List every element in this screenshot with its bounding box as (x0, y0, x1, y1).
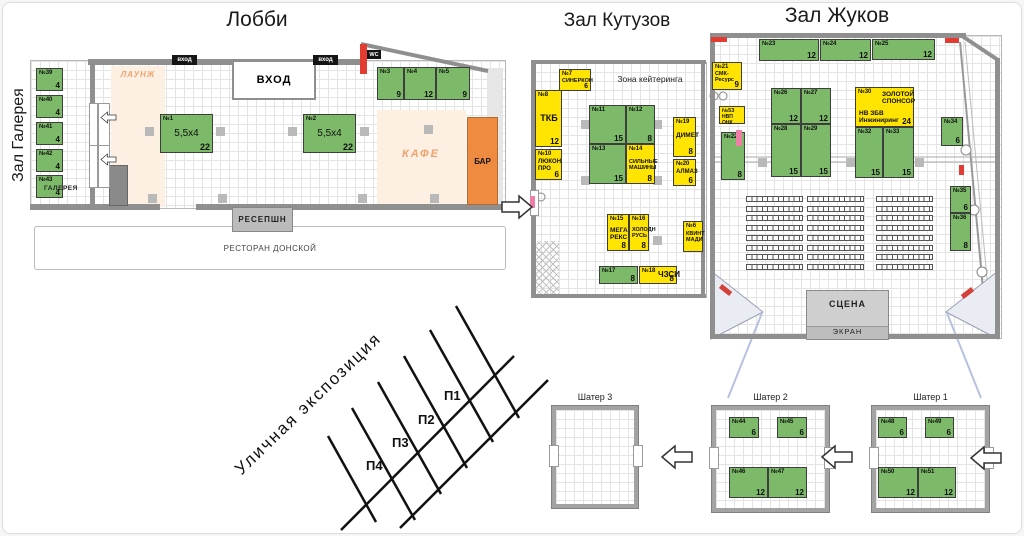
stand-number: №32 (858, 129, 871, 135)
stand-number: №7 (562, 71, 572, 77)
column (430, 194, 439, 203)
stand-32[interactable]: №3215 (855, 127, 883, 178)
tent-3-title: Шатер 3 (552, 392, 638, 402)
stand-number: №13 (592, 146, 605, 152)
seat-row (807, 206, 864, 212)
stand-number: №36 (953, 215, 966, 221)
seat-row (876, 245, 933, 251)
stand-47[interactable]: №4712 (768, 467, 807, 498)
bar-area[interactable]: БАР (467, 117, 498, 205)
stand-14[interactable]: №14СИЛЬНЫЕ МАШИНЫ8 (626, 144, 655, 184)
stand-number: №2 (306, 116, 316, 122)
seat-row (746, 235, 803, 241)
stand-41[interactable]: №414 (36, 122, 63, 145)
seat-row (746, 196, 803, 202)
door-marker (736, 130, 742, 146)
stand-area: 8 (670, 274, 674, 283)
stand-area: 6 (800, 428, 804, 437)
stand-number: №19 (676, 119, 689, 125)
column (758, 158, 767, 167)
seating-block (746, 196, 803, 278)
kutuzov-title: Зал Кутузов (547, 10, 687, 32)
zhukov-right-wall (995, 58, 1000, 338)
stand-23[interactable]: №2312 (759, 39, 819, 61)
column (915, 158, 924, 167)
stand-number: №16 (632, 216, 645, 222)
tent-3 (552, 406, 638, 508)
cafe-label: КАФЕ (388, 148, 454, 160)
gallery-label: ГАЛЕРЕЯ (44, 185, 102, 192)
stand-number: №35 (953, 188, 966, 194)
door-marker (959, 165, 964, 175)
stand-number: №48 (881, 419, 894, 425)
stand-53[interactable]: №53НВП ОНК (719, 106, 745, 124)
stand-20[interactable]: №20АЛМАЗ6 (673, 159, 696, 186)
stand-area: 12 (795, 488, 804, 497)
stand-number: №28 (774, 126, 787, 132)
main-entrance[interactable]: ВХОД (232, 60, 316, 100)
stand-49[interactable]: №496 (925, 417, 954, 438)
stand-number: №1 (163, 116, 173, 122)
stand-42[interactable]: №424 (36, 149, 63, 172)
stand-area: 4 (56, 108, 60, 117)
stand-1[interactable]: №15,5x422 (160, 114, 213, 153)
seat-row (876, 264, 933, 270)
entrance-small[interactable]: вход (313, 55, 338, 65)
tent-door (869, 447, 879, 469)
stand-number: №30 (858, 89, 871, 95)
stand-17[interactable]: №178 (599, 266, 638, 284)
stand-area: 12 (756, 488, 765, 497)
stand-area: 6 (584, 83, 588, 90)
seat-row (876, 215, 933, 221)
stand-area: 8 (689, 147, 693, 156)
gallery-door-gap (89, 103, 98, 146)
tent-door (984, 447, 994, 469)
stand-area: 4 (56, 81, 60, 90)
stand-7[interactable]: №7СИНЕРКОН6 (559, 69, 591, 91)
stand-39[interactable]: №394 (36, 68, 63, 91)
kutuzov-right-wall (701, 60, 705, 298)
stand-area: 22 (343, 142, 353, 152)
stand-number: №25 (875, 41, 888, 47)
seat-row (746, 215, 803, 221)
stand-area: 4 (56, 135, 60, 144)
lounge-label: ЛАУНЖ (111, 70, 165, 79)
column (218, 194, 227, 203)
stand-number: №5 (439, 69, 449, 75)
stand-8[interactable]: №8ТКБ12 (535, 90, 562, 147)
stand-number: №20 (676, 161, 689, 167)
stand-2[interactable]: №25,5x422 (303, 114, 356, 153)
stand-48[interactable]: №486 (878, 417, 907, 438)
stand-number: №46 (732, 469, 745, 475)
stand-18[interactable]: №18ЧЗСИ8 (639, 266, 677, 284)
stand-area: 15 (614, 174, 623, 183)
stand-5[interactable]: №59 (436, 67, 470, 100)
column (216, 127, 225, 136)
stand-21[interactable]: №21СМК-Ресурс9 (712, 62, 742, 90)
gallery-door[interactable] (98, 103, 110, 146)
stand-number: №15 (610, 216, 623, 222)
seat-row (807, 215, 864, 221)
stand-number: №43 (39, 177, 52, 183)
stand-26[interactable]: №2612 (771, 88, 801, 124)
gallery-door[interactable] (98, 145, 110, 188)
stand-area: 12 (944, 488, 953, 497)
stand-25[interactable]: №2512 (872, 39, 935, 60)
seat-row (746, 254, 803, 260)
stand-area: 9 (735, 80, 739, 89)
seat-row (746, 206, 803, 212)
reception-desk[interactable]: РЕСЕПШН (232, 207, 293, 232)
seat-row (746, 245, 803, 251)
stand-area: 9 (397, 90, 401, 99)
stand-area: 24 (902, 117, 911, 126)
stand-area: 15 (819, 167, 828, 176)
stand-number: №44 (732, 419, 745, 425)
stand-10[interactable]: №10ЛЮКОН ПРО6 (535, 149, 562, 180)
stand-size: 5,5x4 (161, 128, 212, 139)
stand-16[interactable]: №16ХОЛОДН РУСЬ8 (629, 214, 649, 251)
stand-number: №18 (642, 268, 655, 274)
stand-19[interactable]: №19ДИМЕТ8 (673, 117, 696, 157)
column (424, 125, 433, 134)
stand-number: №14 (629, 146, 642, 152)
stand-number: №23 (762, 41, 775, 47)
stand-24[interactable]: №2412 (820, 39, 871, 61)
stand-51[interactable]: №5112 (918, 467, 956, 498)
stand-number: №21 (715, 64, 728, 70)
stand-area: 6 (752, 428, 756, 437)
gallery-title: Зал Галерея (10, 75, 28, 195)
seat-row (876, 206, 933, 212)
stand-company: ТКБ (538, 113, 560, 123)
stand-13[interactable]: №1315 (589, 144, 626, 184)
stand-number: №42 (39, 151, 52, 157)
stand-area: 9 (463, 90, 467, 99)
zhukov-title: Зал Жуков (767, 4, 907, 28)
stand-46[interactable]: №4612 (729, 467, 768, 498)
stairs-area (533, 241, 559, 294)
stand-number: №49 (928, 419, 941, 425)
stand-number: №10 (538, 151, 551, 157)
stand-number: №50 (881, 469, 894, 475)
seating-block (807, 196, 864, 278)
stand-area: 12 (819, 114, 828, 123)
floor-plan-page: Лобби Зал Кутузов Зал Жуков Зал Галерея … (0, 0, 1024, 536)
tent-door (633, 445, 643, 467)
stand-12[interactable]: №128 (626, 105, 655, 144)
stand-35[interactable]: №356 (950, 186, 971, 213)
seat-row (746, 264, 803, 270)
stand-area: 4 (56, 162, 60, 171)
stand-50[interactable]: №5012 (878, 467, 918, 498)
stand-area: 15 (871, 168, 880, 177)
lobby-bottom-wall-left (30, 204, 160, 210)
stand-number: №26 (774, 90, 787, 96)
stand-area: 12 (550, 137, 559, 146)
stand-number: №39 (39, 70, 52, 76)
stand-size: 5,5x4 (304, 128, 355, 139)
column (846, 158, 855, 167)
stand-area: 15 (614, 134, 623, 143)
tent-door (709, 447, 719, 469)
stand-45[interactable]: №456 (777, 417, 807, 438)
stand-company: МЕГА РЕКС (610, 227, 627, 242)
stand-number: №40 (39, 97, 52, 103)
stand-number: №33 (886, 129, 899, 135)
stand-area: 8 (738, 170, 742, 179)
stand-area: 22 (200, 142, 210, 152)
stand-company: СИЛЬНЫЕ МАШИНЫ (629, 159, 653, 172)
stand-number: №3 (380, 69, 390, 75)
stand-area: 6 (947, 428, 951, 437)
stand-area: 8 (648, 134, 652, 143)
fire-exit-marker (360, 44, 367, 74)
stand-area: 6 (900, 428, 904, 437)
stand-area: 8 (622, 241, 626, 250)
screen-label: ЭКРАН (807, 326, 888, 339)
column (288, 127, 297, 136)
stand-area: 12 (906, 488, 915, 497)
gallery-door-gap (89, 145, 98, 188)
stage: СЦЕНА ЭКРАН (806, 290, 889, 340)
stand-number: №45 (780, 419, 793, 425)
stand-number: №41 (39, 124, 52, 130)
seating-block (876, 196, 933, 278)
stand-number: №6 (686, 223, 696, 229)
stand-company: НВП ОНК (722, 115, 743, 127)
catering-zone-label: Зона кейтеринга (597, 74, 703, 84)
stand-number: №24 (823, 41, 836, 47)
door-marker (711, 37, 727, 42)
stand-company: ХОЛОДН РУСЬ (632, 227, 647, 240)
tent-1-title: Шатер 1 (872, 392, 989, 402)
stand-area: 8 (631, 274, 635, 283)
stand-number: №11 (592, 107, 605, 113)
stand-area: 6 (689, 176, 693, 185)
stand-number: №4 (407, 69, 417, 75)
stand-area: 6 (964, 203, 968, 212)
seat-row (876, 254, 933, 260)
zhukov-top-wall (710, 33, 966, 38)
stand-15[interactable]: №15МЕГА РЕКС8 (607, 214, 629, 251)
stand-company: ЗОЛОТОЙ СПОНСОР (882, 91, 912, 106)
seat-row (807, 245, 864, 251)
stand-number: №17 (602, 268, 615, 274)
stand-area: 8 (648, 174, 652, 183)
column (148, 194, 157, 203)
seat-row (807, 264, 864, 270)
stand-6[interactable]: №6КВИНТ МАДИ (683, 221, 703, 252)
stand-company: АЛМАЗ (676, 169, 694, 176)
stand-number: №47 (771, 469, 784, 475)
stand-30[interactable]: №30ЗОЛОТОЙ СПОНСОРНВ ЗБВ Инжиниринг24 (855, 87, 914, 127)
seat-row (876, 225, 933, 231)
door-marker (530, 196, 535, 208)
tent-2-title: Шатер 2 (712, 392, 829, 402)
seat-row (807, 196, 864, 202)
stand-area: 15 (902, 168, 911, 177)
stand-40[interactable]: №404 (36, 95, 63, 118)
stand-number: №8 (538, 92, 548, 98)
stand-area: 6 (555, 170, 559, 179)
stage-label: СЦЕНА (807, 299, 888, 309)
tent-door (824, 447, 834, 469)
stand-area: 8 (642, 241, 646, 250)
stand-11[interactable]: №1115 (589, 105, 626, 144)
seat-row (876, 196, 933, 202)
column (360, 127, 369, 136)
stand-number: №12 (629, 107, 642, 113)
stand-area: 12 (859, 51, 868, 60)
kutuzov-bottom-wall (531, 294, 706, 298)
stand-28[interactable]: №2815 (771, 124, 801, 177)
seat-row (746, 225, 803, 231)
column (358, 194, 367, 203)
stand-number: №29 (804, 126, 817, 132)
stand-number: №51 (921, 469, 934, 475)
stand-area: 12 (807, 51, 816, 60)
stand-number: №27 (804, 90, 817, 96)
stand-area: 6 (956, 136, 960, 145)
seat-row (807, 254, 864, 260)
stand-area: 12 (424, 90, 433, 99)
stand-4[interactable]: №412 (404, 67, 436, 100)
stand-36[interactable]: №368 (950, 213, 971, 251)
stand-number: №34 (944, 119, 957, 125)
restaurant-area: РЕСТОРАН ДОНСКОЙ (34, 226, 506, 270)
seat-row (876, 235, 933, 241)
stand-area: 12 (789, 114, 798, 123)
stand-34[interactable]: №346 (941, 117, 963, 146)
seat-row (807, 235, 864, 241)
entrance-small[interactable]: вход (172, 55, 197, 65)
column (145, 127, 154, 136)
stand-area: 12 (923, 50, 932, 59)
service-block (109, 165, 128, 206)
door-marker (945, 38, 959, 43)
kutuzov-top-wall (531, 60, 706, 64)
column (653, 236, 662, 245)
stand-33[interactable]: №3315 (883, 127, 914, 178)
seat-row (807, 225, 864, 231)
stand-3[interactable]: №39 (377, 67, 404, 100)
stand-company: ДИМЕТ (676, 132, 694, 139)
stand-29[interactable]: №2915 (801, 124, 831, 177)
stand-27[interactable]: №2712 (801, 88, 831, 124)
stand-area: 8 (964, 241, 968, 250)
stand-area: 15 (789, 167, 798, 176)
tent-door (549, 445, 559, 467)
stand-44[interactable]: №446 (729, 417, 759, 438)
lobby-title: Лобби (197, 8, 317, 32)
stand-company: КВИНТ МАДИ (686, 231, 701, 244)
wc-label: WC (367, 50, 381, 59)
